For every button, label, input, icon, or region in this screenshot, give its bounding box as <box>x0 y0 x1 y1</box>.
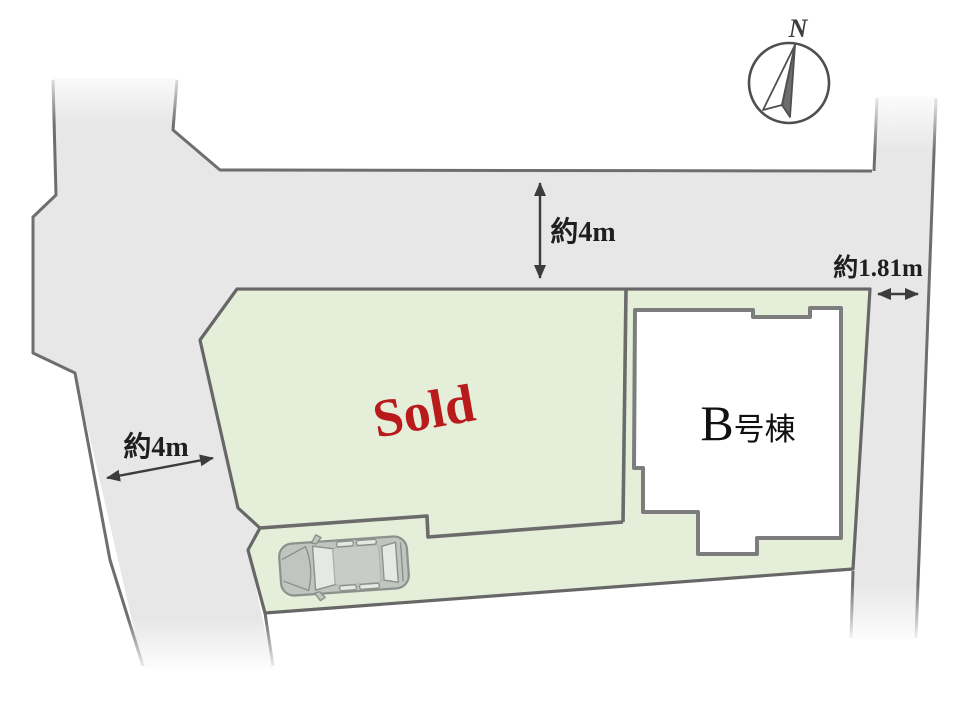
compass: N <box>749 14 829 123</box>
car-side-window-left-2 <box>356 539 376 545</box>
car-roof <box>333 545 382 586</box>
compass-n-label: N <box>788 14 809 43</box>
road-fade-east-bottom <box>838 584 942 644</box>
car-windshield <box>313 545 336 590</box>
site-plan-drawing: 約4m 約4m 約1.81m Sold B号棟 N <box>0 0 960 720</box>
car-side-window-right-2 <box>359 583 379 589</box>
site-plan: 約4m 約4m 約1.81m Sold B号棟 N <box>0 0 960 720</box>
building-b-label-suffix: 号棟 <box>734 412 796 447</box>
road-fade-west-bottom <box>96 618 288 674</box>
dimension-label-top-road: 約4m <box>550 215 615 248</box>
car-side-window-left-1 <box>336 541 353 547</box>
building-b-label-main: B <box>700 395 733 451</box>
dimension-label-right-side: 約1.81m <box>833 253 923 282</box>
dimension-label-left-road: 約4m <box>123 430 188 463</box>
car-side-window-right-1 <box>339 585 356 591</box>
road-fade-east-top <box>854 88 948 152</box>
road-fade-north <box>44 66 186 124</box>
car-rear-window <box>382 542 399 583</box>
